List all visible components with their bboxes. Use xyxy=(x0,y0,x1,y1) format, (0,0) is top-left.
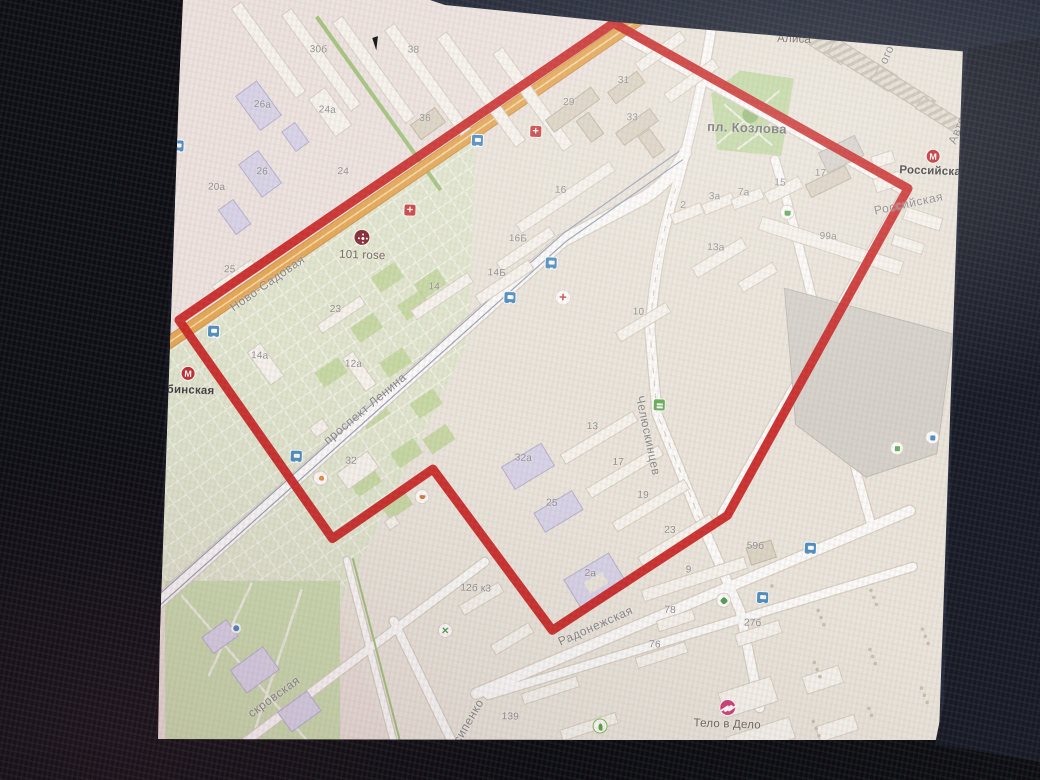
metro-station-label: бинская xyxy=(166,384,214,398)
building-number-label: 17 xyxy=(815,168,827,179)
bus-map-icon[interactable] xyxy=(471,134,484,147)
building-number-label: 76 xyxy=(649,639,661,650)
building-number-label: 26 xyxy=(256,166,268,177)
building-number-label: 59б xyxy=(746,541,764,553)
bus-map-icon[interactable] xyxy=(544,256,557,269)
building-number-label: 78 xyxy=(664,605,676,616)
pharm-map-icon[interactable] xyxy=(529,125,542,138)
bus-map-icon[interactable] xyxy=(207,325,220,338)
building-number-label: 2а xyxy=(584,568,596,579)
building-number-label: 16Б xyxy=(509,233,528,245)
building-number-label: 27б xyxy=(744,617,762,629)
building-number-label: 139 xyxy=(501,711,519,723)
building-number-label: 24 xyxy=(337,166,349,177)
building-number-label: 25 xyxy=(546,497,558,508)
building-number-label: 13 xyxy=(587,421,599,432)
building-number-label: 13а xyxy=(707,242,725,254)
building-number-label: 38 xyxy=(408,44,420,55)
map-canvas[interactable]: Ново-Садоваяпроспект ЛенинаЧелюскинцевРа… xyxy=(155,0,965,780)
building-number-label: 36 xyxy=(419,113,431,124)
building-number-label: 12б к3 xyxy=(460,583,491,595)
building-number-label: 20а xyxy=(208,182,226,194)
building-number-label: 23 xyxy=(329,304,341,315)
building-number-label: 29 xyxy=(563,97,575,108)
metro-station-label: Российская xyxy=(899,164,964,178)
bus-map-icon[interactable] xyxy=(804,542,817,555)
building-number-label: 10 xyxy=(633,306,645,317)
building-number-label: 33 xyxy=(626,112,638,123)
bus-map-icon[interactable] xyxy=(503,291,516,304)
building-number-label: 31 xyxy=(618,75,630,86)
building-number-label: 12а xyxy=(345,358,363,370)
building-number-label: 32 xyxy=(345,455,357,466)
building-number-label: 16 xyxy=(555,185,567,196)
building-number-label: 14 xyxy=(428,281,440,292)
building-number-label: 17 xyxy=(612,457,624,468)
shop-map-icon[interactable] xyxy=(653,398,666,411)
area-name-label: пл. Козлова xyxy=(707,119,787,137)
screen-photo: Ново-Садоваяпроспект ЛенинаЧелюскинцевРа… xyxy=(0,0,1040,780)
building-number-label: 15 xyxy=(774,177,786,188)
building-number-label: 14а xyxy=(251,350,269,362)
building-number-label: 30б xyxy=(310,44,328,56)
building-number-label: 7а xyxy=(738,187,750,198)
building-number-label: 99а xyxy=(819,231,837,243)
building-number-label: 19 xyxy=(637,490,649,501)
basemap-graphics xyxy=(155,0,965,780)
building-number-label: 2 xyxy=(680,200,686,211)
poi-name-label: Тело в Дело xyxy=(693,717,761,731)
building-number-label: 3а xyxy=(709,191,721,202)
building-number-label: 9 xyxy=(685,564,691,575)
building-number-label: 24а xyxy=(319,104,337,116)
pharm-map-icon[interactable] xyxy=(403,203,416,216)
bus-map-icon[interactable] xyxy=(290,450,303,463)
building-number-label: 14Б xyxy=(487,267,506,279)
bus-map-icon[interactable] xyxy=(756,591,769,604)
building-number-label: 26а xyxy=(254,99,272,111)
poi-name-label: 101 rose xyxy=(339,249,386,263)
building-number-label: 25 xyxy=(224,264,236,275)
building-number-label: 32а xyxy=(515,452,533,464)
building-number-label: 23 xyxy=(664,525,676,536)
